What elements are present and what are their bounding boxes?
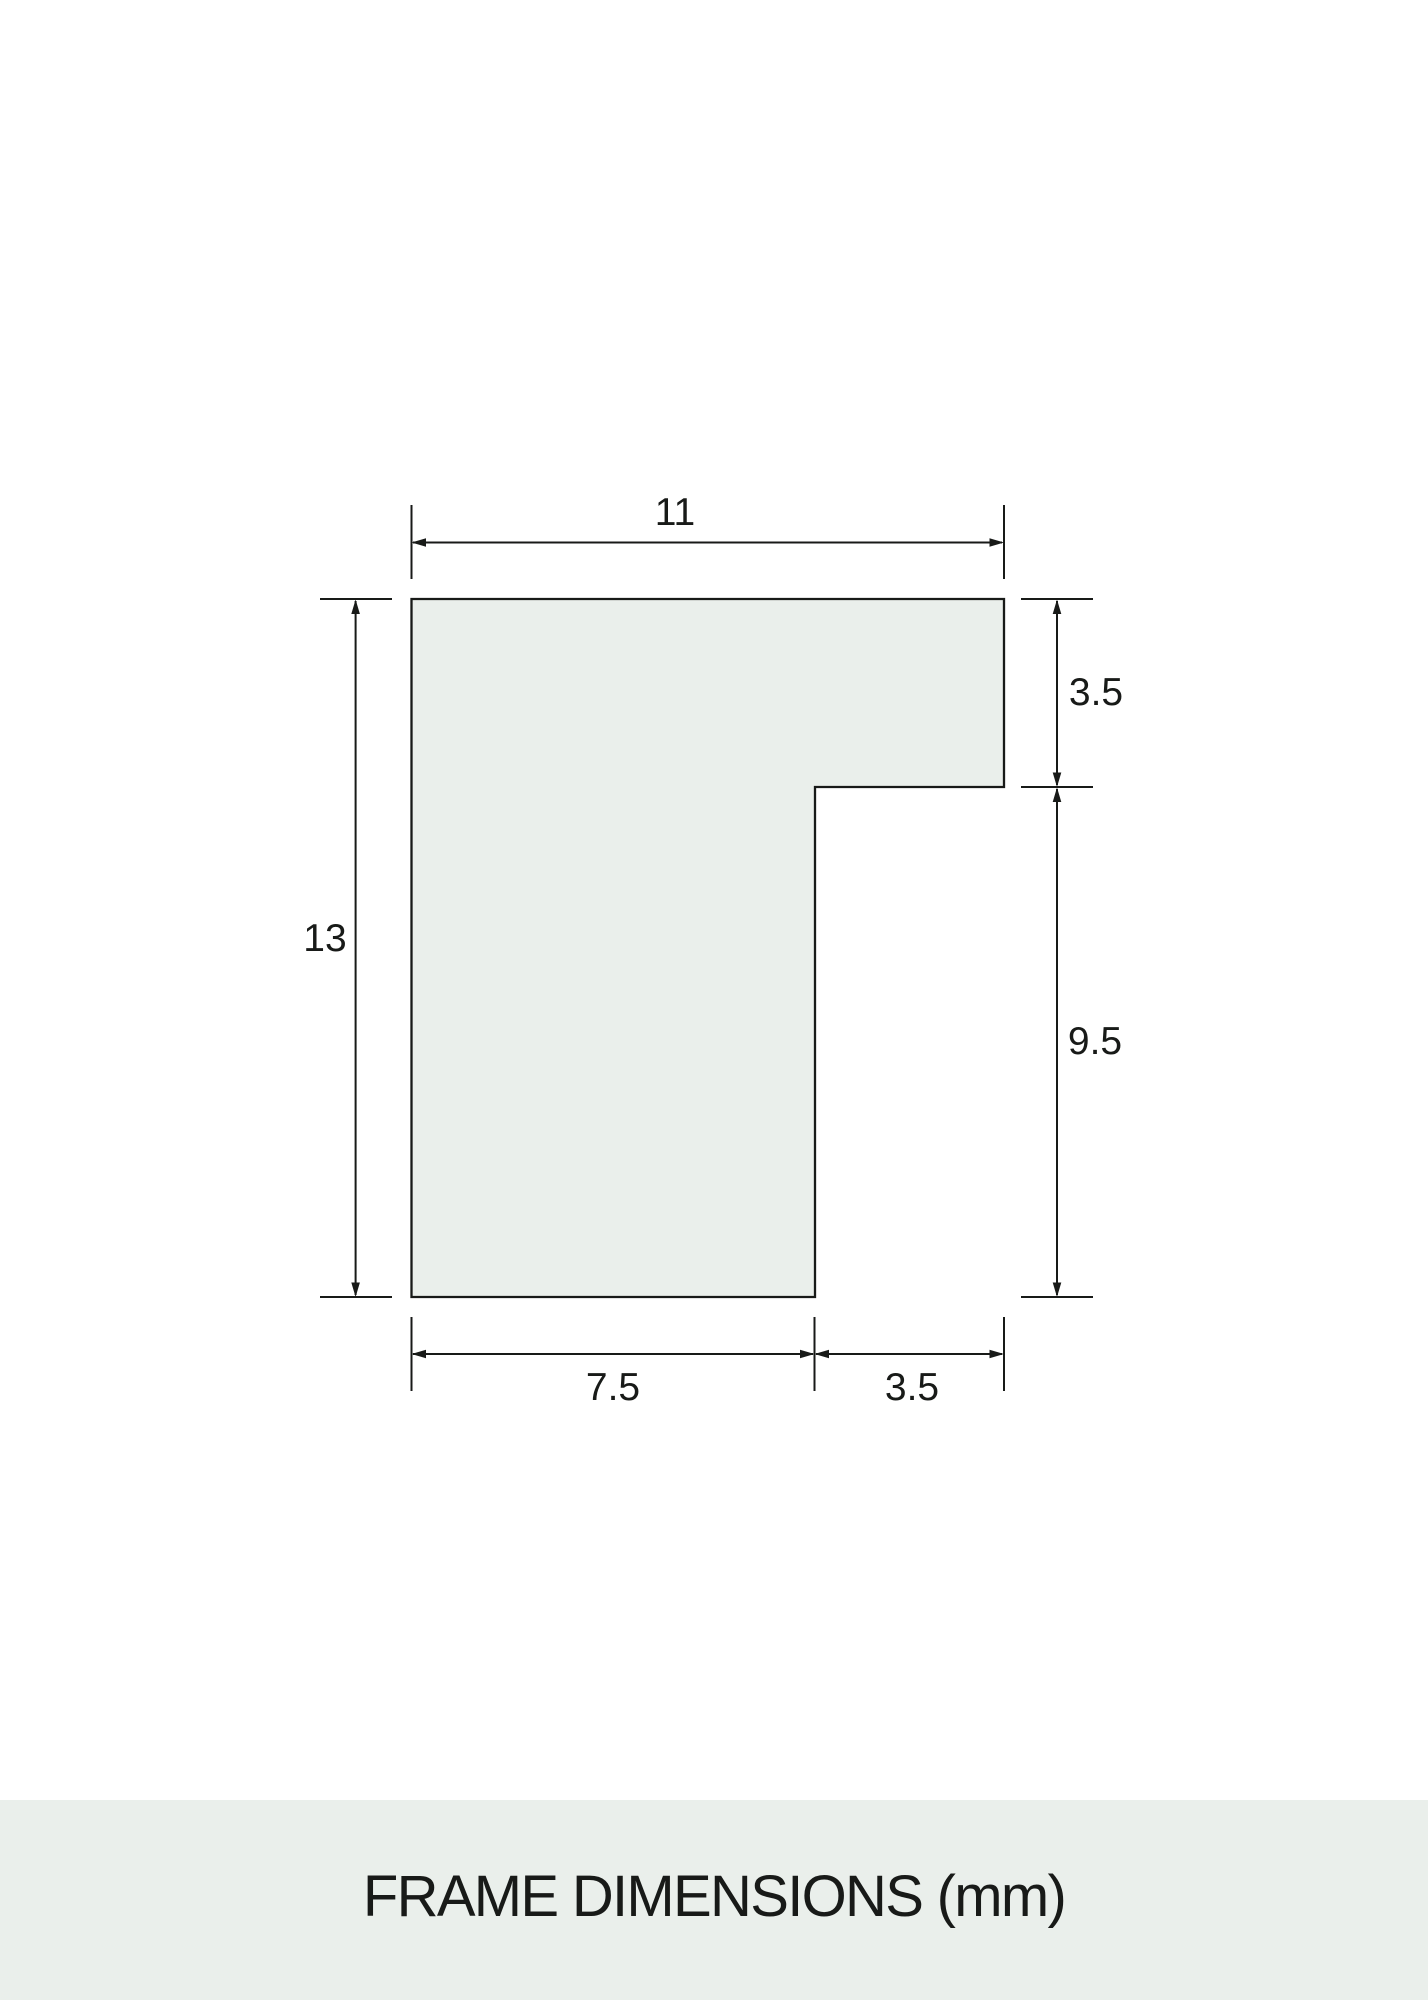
svg-text:FRAME DIMENSIONS (mm): FRAME DIMENSIONS (mm) xyxy=(363,1864,1065,1929)
svg-text:11: 11 xyxy=(655,491,696,534)
svg-text:7.5: 7.5 xyxy=(586,1366,640,1409)
svg-text:3.5: 3.5 xyxy=(1069,671,1123,714)
svg-text:13: 13 xyxy=(303,917,346,960)
svg-text:9.5: 9.5 xyxy=(1068,1020,1122,1063)
svg-text:3.5: 3.5 xyxy=(885,1366,939,1409)
